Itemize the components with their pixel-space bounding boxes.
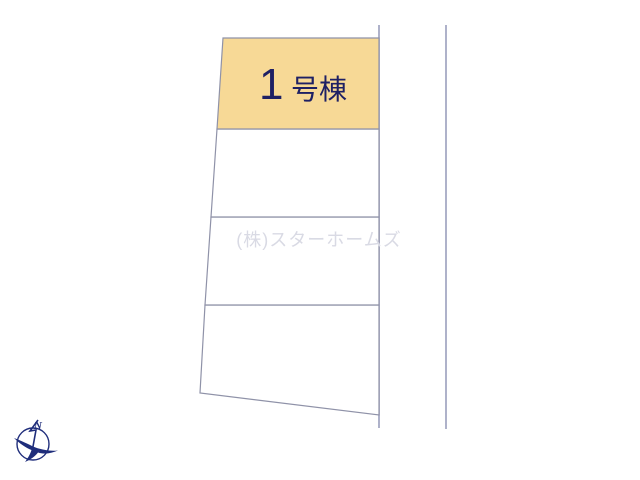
- plot-map-svg: 1 号棟 (株)スターホームズ N: [0, 0, 640, 480]
- lot-outlines: [200, 38, 379, 415]
- lot-1-number: 1: [259, 60, 283, 109]
- lot-2-polygon: [211, 129, 379, 217]
- plot-map: 1 号棟 (株)スターホームズ N: [0, 0, 640, 480]
- compass-fills: N: [14, 420, 58, 462]
- compass-north-label: N: [33, 420, 43, 432]
- watermark-text: (株)スターホームズ: [236, 230, 401, 250]
- compass-bird-icon: [14, 438, 58, 462]
- lot-1-suffix: 号棟: [291, 74, 347, 105]
- road-lines: [379, 25, 446, 429]
- lot-4-polygon: [200, 305, 379, 415]
- compass-icon: N: [14, 420, 58, 462]
